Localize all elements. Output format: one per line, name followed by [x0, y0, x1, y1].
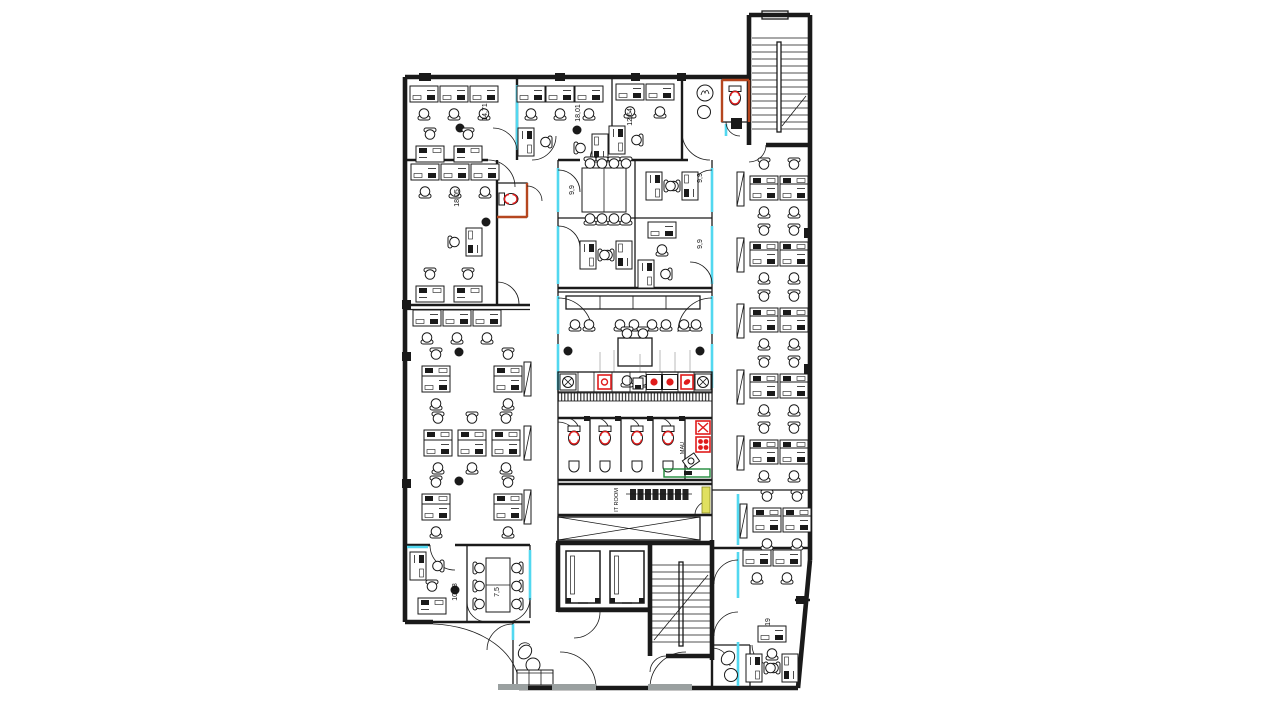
room-office-center-lower-left — [580, 241, 632, 269]
room-office-bottom-left: 10,08 — [410, 552, 459, 614]
room-meeting-bottom-left: 7,5 — [473, 558, 523, 612]
floor-plan-drawing: 14,71 18,01 12,64 18,05 — [0, 0, 1273, 716]
room-office-top-mid: 18,01 — [517, 86, 608, 162]
cooktop-icon — [647, 375, 662, 390]
sofa — [517, 670, 553, 685]
vent-fan-icon — [560, 374, 576, 390]
door-slab — [552, 684, 596, 690]
room-label: 18,05 — [454, 189, 461, 207]
door-slab — [648, 684, 692, 690]
room-right-mid — [743, 550, 801, 584]
shaft — [558, 517, 700, 540]
server-rack-row — [626, 489, 692, 500]
room-glazed-right — [740, 490, 811, 550]
stairwell-top — [752, 11, 808, 132]
counter-hatch — [558, 393, 712, 401]
room-office-left: 18,05 — [411, 164, 518, 302]
elevators — [566, 551, 644, 603]
plant-icon — [697, 85, 713, 101]
room-label: 19 — [765, 618, 772, 626]
room-office-bottom-right: 19 — [746, 618, 798, 682]
room-office-top-left: 14,71 — [410, 86, 498, 162]
wc-bottom-right — [719, 648, 738, 681]
mau-label: MAU — [680, 442, 686, 454]
it-room: IT ROOM — [614, 487, 710, 513]
room-label: 9,9 — [697, 239, 704, 249]
riser-tag — [702, 487, 710, 513]
vent-fan-icon — [695, 374, 711, 390]
room-office-center-lower-right: 9,9 — [638, 222, 704, 288]
wc-bottom-left — [516, 642, 540, 672]
room-label: 14,71 — [482, 103, 489, 121]
stairwell-bottom — [652, 562, 710, 646]
room-office-center-right: 9,9 — [646, 172, 704, 200]
toilet-icon — [729, 86, 741, 105]
bathrooms — [568, 416, 685, 472]
microwave-icon — [598, 375, 611, 389]
room-label: 9,9 — [569, 185, 576, 195]
vestibule-top — [697, 85, 741, 119]
kitchen-counter — [558, 372, 712, 401]
room-label: 12,64 — [627, 108, 634, 126]
cooktop-icon — [663, 375, 678, 390]
it-room-label: IT ROOM — [614, 488, 620, 512]
elevator-car — [566, 551, 600, 603]
room-label: 18,01 — [575, 104, 582, 122]
room-office-top-right: 12,64 — [609, 84, 674, 154]
open-plan-left — [413, 310, 531, 538]
open-plan-right — [737, 158, 808, 482]
elevator-car — [610, 551, 644, 603]
lobby-bottom — [498, 642, 738, 690]
break-room — [558, 296, 712, 401]
floor-plan-page: 14,71 18,01 12,64 18,05 — [0, 0, 1273, 716]
toilet-icon — [499, 193, 518, 205]
door-slab — [498, 684, 528, 690]
room-label: 7,5 — [494, 587, 501, 597]
room-meeting-center: 9,9 — [569, 157, 632, 225]
room-label: 10,08 — [452, 583, 459, 601]
room-label: 9,9 — [697, 173, 704, 183]
